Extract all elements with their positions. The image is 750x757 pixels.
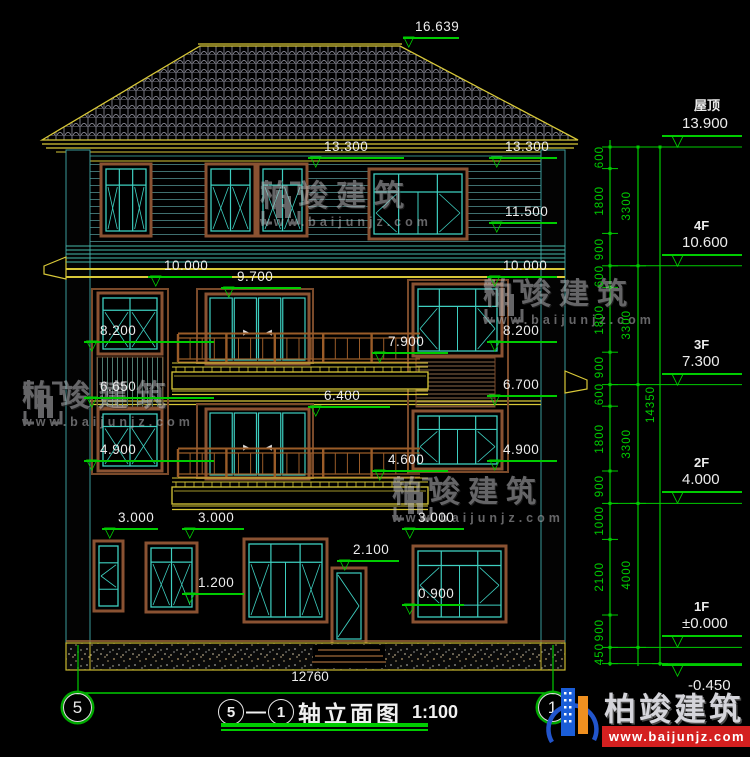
- logo-url-banner: www.baijunjz.com: [602, 726, 750, 747]
- dim-text: 900: [594, 475, 606, 497]
- dim-text: 600: [594, 383, 606, 405]
- elevation-value: 8.200: [503, 323, 539, 338]
- dim-text: 900: [594, 356, 606, 378]
- elevation-value: 13.900: [682, 115, 728, 132]
- elevation-value: 6.700: [503, 377, 539, 392]
- elevation-value: 6.400: [324, 388, 360, 403]
- dim-text: 3300: [621, 310, 633, 340]
- triangle-down-icon: [310, 403, 322, 418]
- triangle-down-icon: [489, 338, 501, 353]
- elevation-value: 10.000: [503, 258, 547, 273]
- grid-bubble-5: 5: [63, 693, 92, 722]
- marker-line: [84, 460, 214, 462]
- dim-text: 1000: [594, 506, 606, 536]
- elevation-value: 4.900: [100, 442, 136, 457]
- dim-text: 900: [594, 619, 606, 641]
- title-underline-thin: [221, 729, 428, 731]
- dim-text: 2100: [594, 562, 606, 592]
- elevation-value: 3.000: [198, 510, 234, 525]
- dim-text: 600: [594, 146, 606, 168]
- elevation-value: ±0.000: [682, 615, 728, 632]
- elevation-value: 8.200: [100, 323, 136, 338]
- triangle-down-icon: [489, 457, 501, 472]
- triangle-down-icon: [184, 590, 196, 605]
- logo-name: 柏竣建筑: [604, 684, 744, 730]
- elevation-value: 11.500: [505, 204, 548, 219]
- dim-text: 3300: [621, 429, 633, 459]
- dim-text: 1800: [594, 186, 606, 216]
- elevation-value: 2.100: [353, 542, 389, 557]
- elevation-value: 16.639: [415, 19, 459, 34]
- triangle-down-icon: [671, 488, 684, 505]
- elevation-value: 9.700: [237, 269, 273, 284]
- elevation-value: 4.600: [388, 452, 424, 467]
- triangle-down-icon: [374, 349, 386, 364]
- dim-text: 600: [594, 265, 606, 287]
- cad-elevation-canvas: 柏竣建筑 www.baijunjz.com 柏竣建筑 www.baijunjz.…: [0, 0, 750, 757]
- marker-line: [84, 397, 214, 399]
- elevation-value: 10.000: [164, 258, 208, 273]
- elevation-value: 1.200: [198, 575, 234, 590]
- elevation-value: 7.300: [682, 353, 720, 370]
- triangle-down-icon: [491, 219, 503, 234]
- triangle-down-icon: [86, 457, 98, 472]
- company-logo-icon: [544, 682, 602, 754]
- dim-text-total: 14350: [645, 386, 657, 423]
- elevation-value: 7.900: [388, 334, 424, 349]
- dim-text: 1800: [594, 305, 606, 335]
- floor-label: 3F: [694, 337, 709, 352]
- dim-text: 1800: [594, 424, 606, 454]
- triangle-down-icon: [489, 392, 501, 407]
- triangle-down-icon: [671, 661, 684, 678]
- elevation-value: 4.900: [503, 442, 539, 457]
- elevation-value: 3.000: [118, 510, 154, 525]
- floor-label: 1F: [694, 599, 709, 614]
- company-logo: 柏竣建筑 www.baijunjz.com: [544, 682, 750, 754]
- elevation-value: 3.000: [418, 510, 454, 525]
- triangle-down-icon: [671, 132, 684, 149]
- floor-label: 屋顶: [694, 95, 720, 114]
- floor-label: 2F: [694, 455, 709, 470]
- triangle-down-icon: [339, 557, 351, 572]
- triangle-down-icon: [671, 370, 684, 387]
- dim-text: 900: [594, 238, 606, 260]
- triangle-down-icon: [671, 632, 684, 649]
- title-underline-thick: [221, 723, 428, 727]
- marker-line: [84, 341, 214, 343]
- dim-text: 450: [594, 643, 606, 665]
- title-separator: —: [246, 701, 266, 724]
- dim-text: 4000: [621, 560, 633, 590]
- triangle-down-icon: [491, 154, 503, 169]
- triangle-down-icon: [404, 525, 416, 540]
- overall-width-dim: 12760: [270, 669, 350, 684]
- elevation-value: 13.300: [505, 139, 549, 154]
- triangle-down-icon: [671, 251, 684, 268]
- triangle-down-icon: [489, 273, 501, 288]
- elevation-value: 6.650: [100, 379, 136, 394]
- elevation-value: 4.000: [682, 471, 720, 488]
- elevation-value: 13.300: [324, 139, 368, 154]
- triangle-down-icon: [104, 525, 116, 540]
- triangle-down-icon: [184, 525, 196, 540]
- triangle-down-icon: [310, 154, 322, 169]
- triangle-down-icon: [403, 34, 415, 49]
- triangle-down-icon: [223, 284, 235, 299]
- title-bubble-start: 5: [218, 699, 244, 725]
- triangle-down-icon: [86, 394, 98, 409]
- marker-line: [308, 157, 404, 159]
- triangle-down-icon: [86, 338, 98, 353]
- elevation-value: 0.900: [418, 586, 454, 601]
- elevation-value: 10.600: [682, 234, 728, 251]
- title-bubble-end: 1: [268, 699, 294, 725]
- floor-label: 4F: [694, 218, 709, 233]
- triangle-down-icon: [150, 273, 162, 288]
- triangle-down-icon: [404, 601, 416, 616]
- title-scale: 1:100: [412, 702, 458, 723]
- triangle-down-icon: [374, 467, 386, 482]
- dim-text: 3300: [621, 191, 633, 221]
